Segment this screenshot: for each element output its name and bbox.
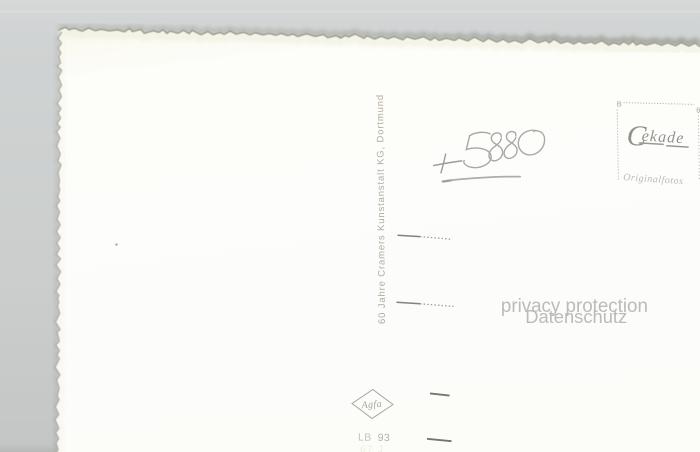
- svg-text:6: 6: [696, 106, 700, 115]
- svg-text:60 Jahre Cramers Kunstanstalt: 60 Jahre Cramers Kunstanstalt KG, Dortmu…: [375, 94, 388, 324]
- svg-text:Datenschutz: Datenschutz: [525, 306, 627, 327]
- svg-text:Agfa: Agfa: [360, 399, 382, 412]
- svg-text:67 J: 67 J: [360, 444, 384, 452]
- svg-text:LB 93: LB 93: [358, 432, 390, 445]
- svg-text:B: B: [617, 100, 622, 109]
